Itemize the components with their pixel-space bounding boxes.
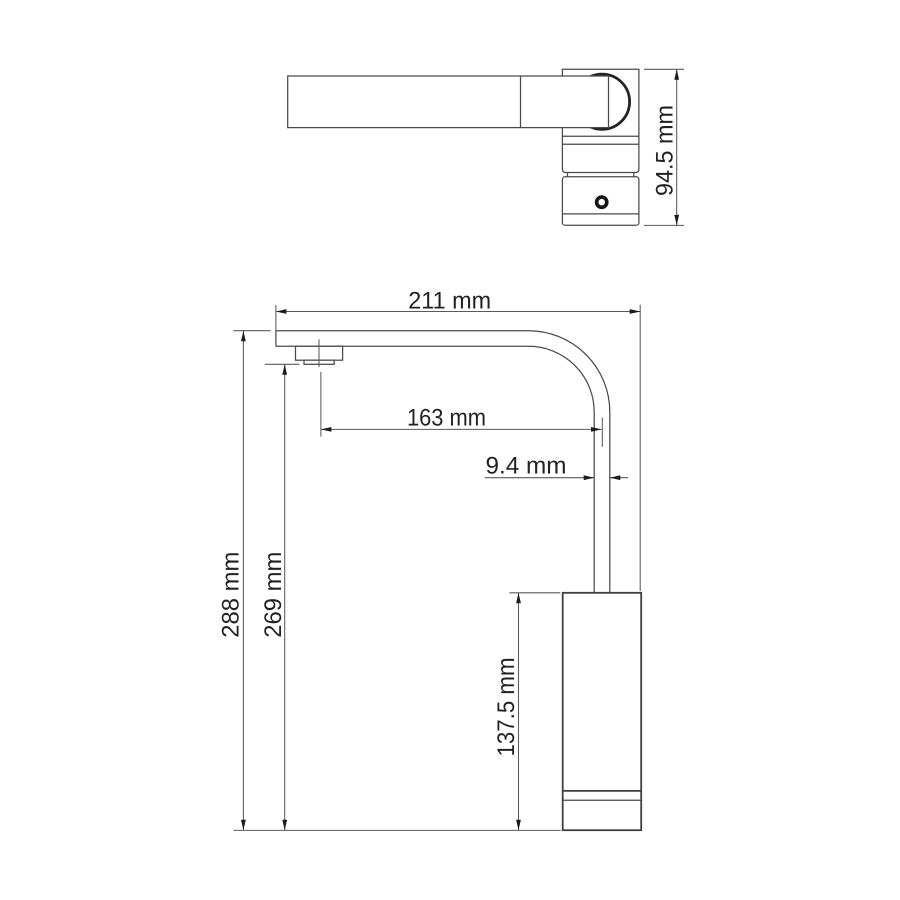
svg-text:9.4 mm: 9.4 mm xyxy=(486,452,567,479)
svg-text:163 mm: 163 mm xyxy=(407,405,486,432)
svg-text:94.5 mm: 94.5 mm xyxy=(652,105,679,196)
svg-text:137.5 mm: 137.5 mm xyxy=(493,658,520,757)
svg-text:269 mm: 269 mm xyxy=(260,552,287,638)
svg-text:288 mm: 288 mm xyxy=(218,552,245,638)
svg-text:211 mm: 211 mm xyxy=(408,288,491,315)
